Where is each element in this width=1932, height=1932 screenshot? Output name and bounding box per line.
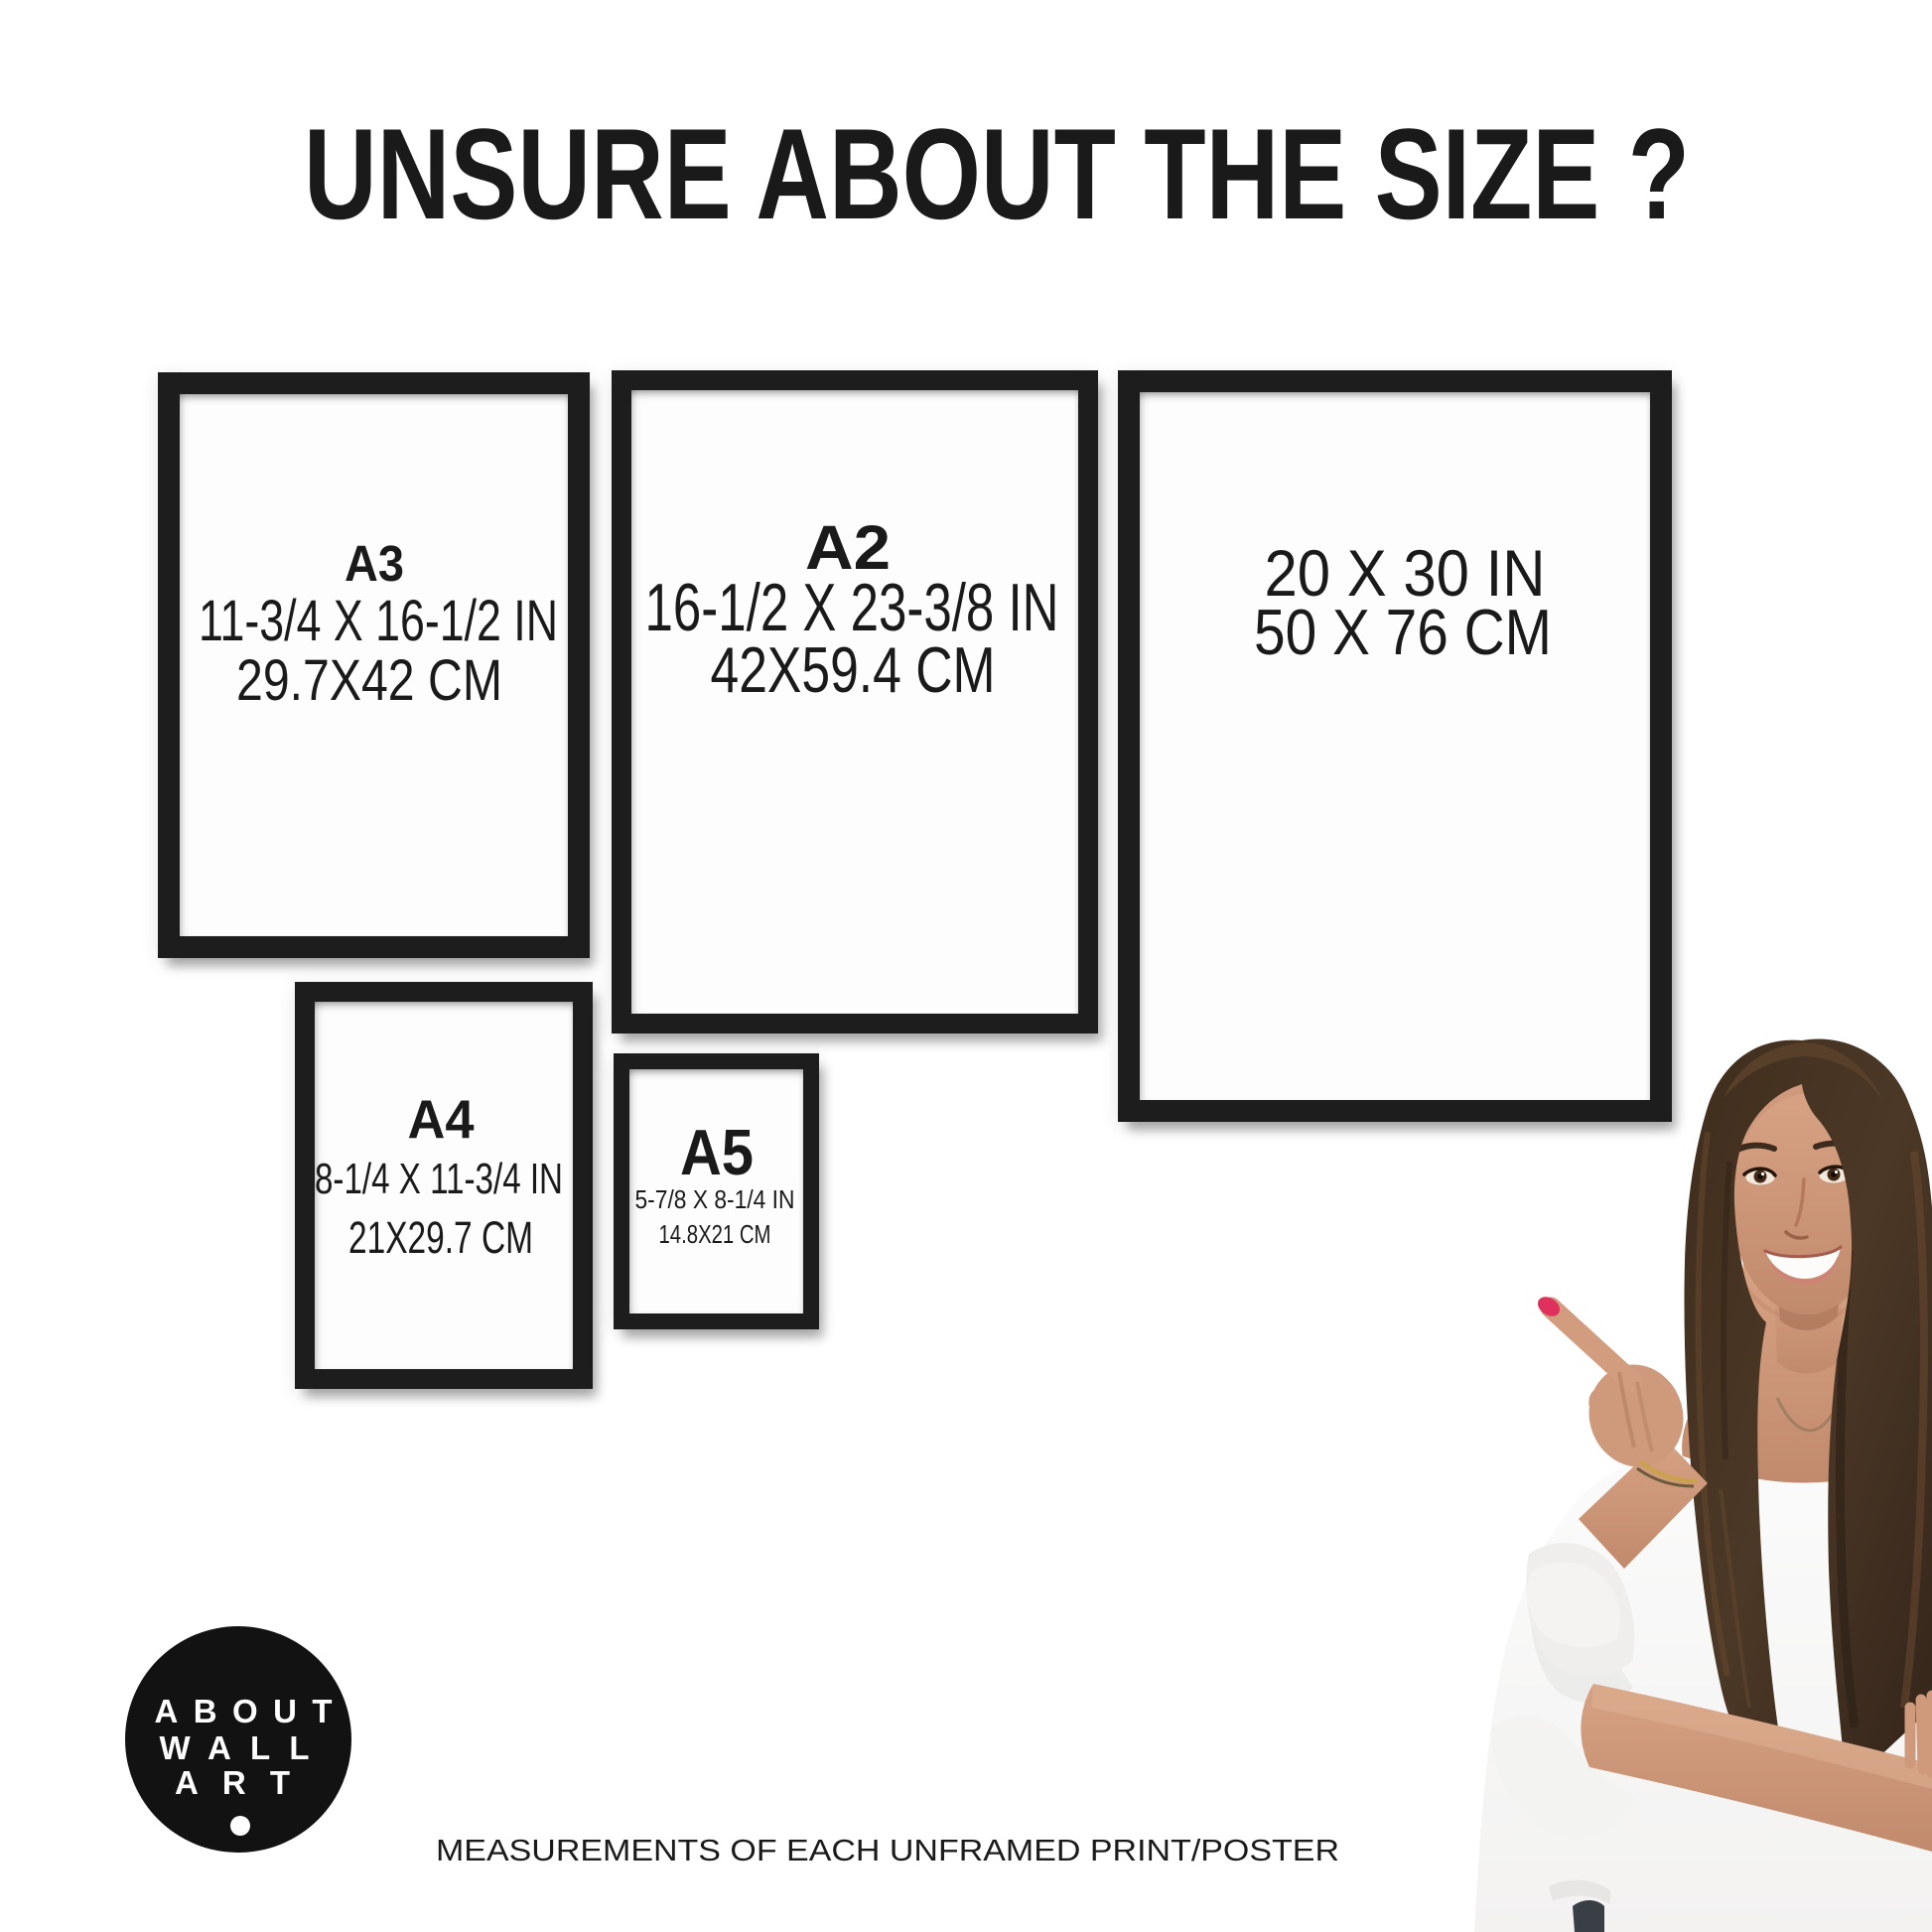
svg-text:42X59.4 CM: 42X59.4 CM — [711, 633, 996, 706]
svg-text:21X29.7 CM: 21X29.7 CM — [348, 1212, 533, 1263]
svg-text:WALL: WALL — [160, 1729, 310, 1766]
svg-text:A4: A4 — [408, 1088, 475, 1150]
svg-text:MEASUREMENTS OF EACH UNFRAMED: MEASUREMENTS OF EACH UNFRAMED PRINT/POST… — [436, 1833, 1339, 1867]
svg-text:50 X 76 CM: 50 X 76 CM — [1254, 596, 1552, 668]
svg-text:UNSURE ABOUT THE SIZE ?: UNSURE ABOUT THE SIZE ? — [304, 101, 1690, 246]
svg-text:ART: ART — [175, 1764, 290, 1801]
svg-text:14.8X21 CM: 14.8X21 CM — [659, 1219, 771, 1249]
svg-text:A5: A5 — [680, 1116, 754, 1188]
svg-text:5-7/8 X 8-1/4 IN: 5-7/8 X 8-1/4 IN — [635, 1184, 795, 1214]
svg-text:8-1/4 X 11-3/4 IN: 8-1/4 X 11-3/4 IN — [315, 1155, 563, 1203]
svg-text:29.7X42 CM: 29.7X42 CM — [236, 648, 502, 713]
svg-text:A3: A3 — [345, 535, 404, 592]
svg-text:11-3/4 X 16-1/2 IN: 11-3/4 X 16-1/2 IN — [199, 589, 558, 653]
svg-text:ABOUT: ABOUT — [155, 1693, 333, 1729]
